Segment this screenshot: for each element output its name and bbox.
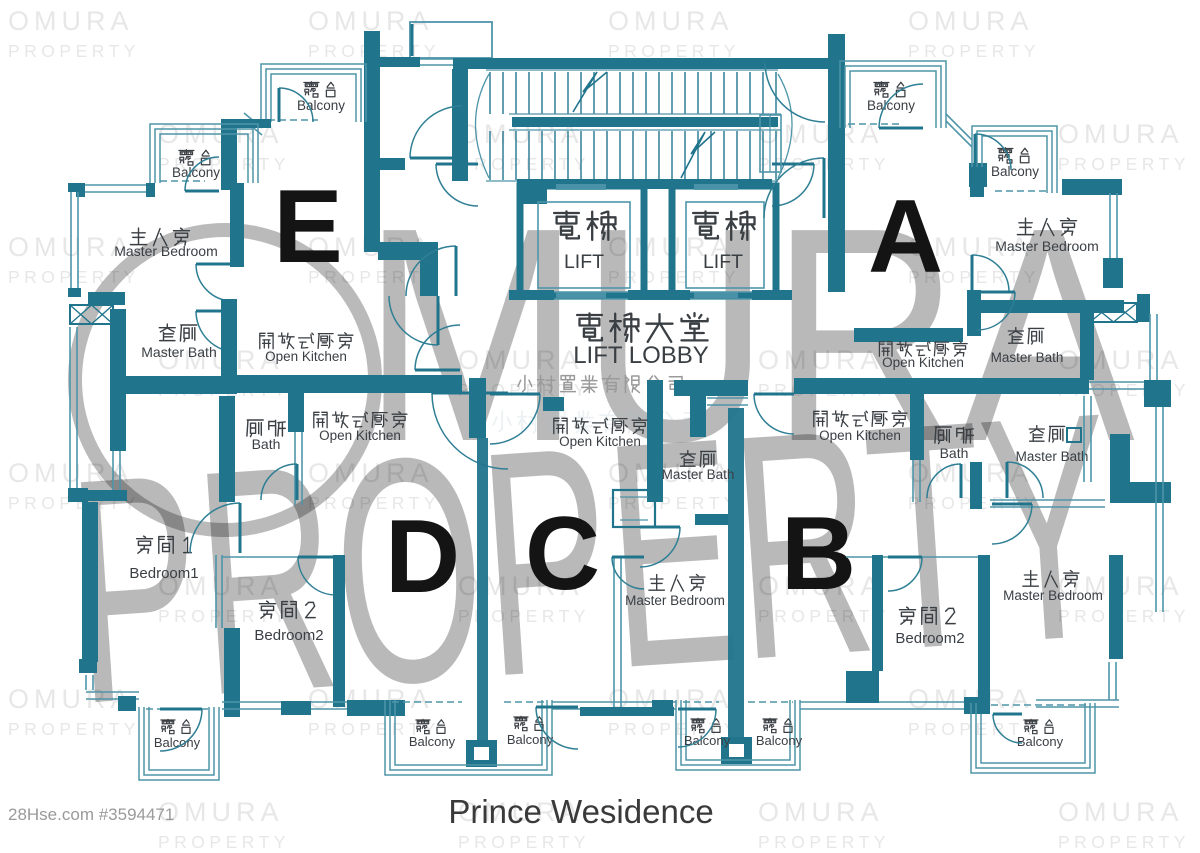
svg-text:E: E <box>273 169 342 285</box>
svg-text:Master Bath: Master Bath <box>662 467 735 482</box>
svg-text:Open Kitchen: Open Kitchen <box>882 355 964 370</box>
svg-text:Open Kitchen: Open Kitchen <box>559 434 641 449</box>
svg-text:B: B <box>781 496 856 612</box>
svg-text:LIFT: LIFT <box>703 251 743 273</box>
svg-text:Bedroom2: Bedroom2 <box>895 630 964 647</box>
svg-text:Bath: Bath <box>252 436 281 452</box>
svg-text:Master Bedroom: Master Bedroom <box>114 243 217 259</box>
svg-text:Balcony: Balcony <box>1017 734 1064 749</box>
svg-text:Open Kitchen: Open Kitchen <box>819 428 901 443</box>
svg-text:Balcony: Balcony <box>867 98 915 113</box>
svg-text:D: D <box>385 499 460 615</box>
svg-text:Master Bath: Master Bath <box>1016 449 1089 464</box>
svg-text:Balcony: Balcony <box>991 164 1039 179</box>
svg-text:Balcony: Balcony <box>684 733 731 748</box>
svg-text:28Hse.com #3594471: 28Hse.com #3594471 <box>8 805 174 824</box>
svg-text:LIFT LOBBY: LIFT LOBBY <box>573 342 709 369</box>
svg-text:Master Bedroom: Master Bedroom <box>625 593 725 608</box>
svg-text:C: C <box>525 496 600 612</box>
svg-text:Master Bath: Master Bath <box>141 344 216 360</box>
svg-text:Prince Wesidence: Prince Wesidence <box>448 793 713 830</box>
svg-text:Bath: Bath <box>940 445 969 461</box>
svg-text:Open Kitchen: Open Kitchen <box>265 349 347 364</box>
svg-text:LIFT: LIFT <box>564 251 604 273</box>
svg-text:Balcony: Balcony <box>409 734 456 749</box>
svg-text:Master Bedroom: Master Bedroom <box>995 238 1098 254</box>
svg-text:Bedroom2: Bedroom2 <box>254 627 323 644</box>
svg-text:A: A <box>868 179 943 295</box>
svg-text:Bedroom1: Bedroom1 <box>129 565 198 582</box>
svg-text:Open Kitchen: Open Kitchen <box>319 428 401 443</box>
svg-text:Master Bedroom: Master Bedroom <box>1003 588 1103 603</box>
svg-text:Balcony: Balcony <box>172 165 220 180</box>
svg-text:Master Bath: Master Bath <box>991 350 1064 365</box>
svg-text:Balcony: Balcony <box>756 733 803 748</box>
